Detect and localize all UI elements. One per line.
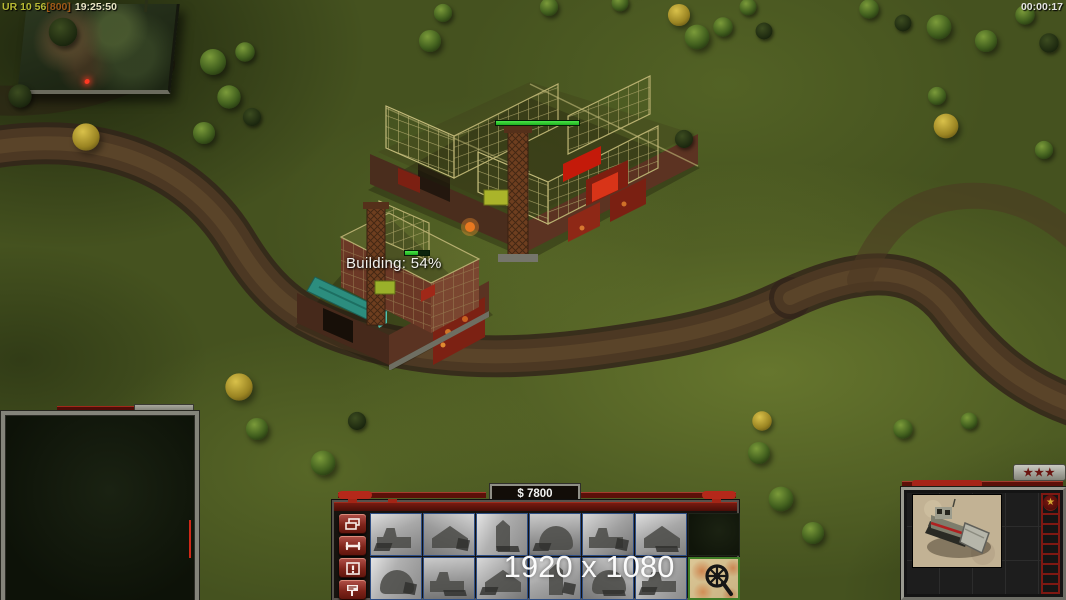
tree — [225, 373, 252, 400]
building-thumbnail-detail — [443, 590, 467, 596]
tree — [934, 114, 959, 139]
build-option-button[interactable] — [370, 557, 422, 600]
minimap[interactable] — [1, 411, 199, 600]
camera-view-line — [189, 520, 191, 558]
rank-stars-button[interactable]: ★★★ — [1013, 464, 1066, 481]
debug-prefix: UR 10 56 — [2, 1, 46, 13]
game-viewport[interactable]: Building: 54% UR 10 56[800]19:25:50 00:0… — [0, 0, 1066, 600]
formation-button[interactable] — [339, 514, 366, 534]
tree — [434, 4, 452, 22]
tree — [246, 418, 268, 440]
tree — [1035, 141, 1053, 159]
building-thumbnail-detail — [403, 582, 417, 595]
tree — [235, 42, 255, 62]
tree — [217, 85, 240, 108]
tree — [200, 49, 226, 75]
building-thumbnail-silhouette — [644, 524, 680, 548]
unit-info-panel[interactable]: ★ — [901, 487, 1066, 600]
tree — [675, 130, 693, 148]
exclamation-icon — [346, 562, 360, 575]
topband-nub — [712, 499, 721, 503]
building-thumbnail-detail — [602, 590, 626, 596]
tree — [713, 17, 733, 37]
star-emblem-icon: ★ — [1043, 495, 1058, 511]
tree — [685, 25, 710, 50]
tree — [8, 84, 31, 107]
building-thumbnail-silhouette — [430, 572, 464, 592]
building-progress-label: Building: 54% — [346, 255, 442, 272]
debug-clock: 19:25:50 — [75, 1, 117, 13]
tree — [668, 4, 690, 26]
construction-dozer-portrait[interactable] — [912, 494, 1002, 568]
alert-button[interactable] — [339, 558, 366, 578]
tree — [1039, 33, 1059, 53]
layers-icon — [345, 518, 360, 530]
tree — [928, 87, 946, 105]
building-light — [84, 79, 90, 84]
side-button-column — [339, 514, 367, 600]
debug-text: UR 10 56[800]19:25:50 — [2, 1, 117, 13]
command-bar-topband — [334, 502, 737, 511]
tree — [927, 15, 952, 40]
tree — [72, 123, 99, 150]
building-thumbnail-detail — [639, 587, 658, 595]
tree — [859, 0, 879, 19]
tree — [49, 18, 78, 47]
command-center-building[interactable] — [17, 4, 179, 94]
building-thumbnail-detail — [374, 543, 393, 551]
dozer-art — [913, 495, 1001, 567]
tree — [769, 487, 794, 512]
tree — [193, 122, 215, 144]
tree — [893, 419, 913, 439]
tree — [311, 451, 336, 476]
decor-stripe-left — [338, 492, 486, 498]
decor-stripe-right — [580, 492, 736, 498]
sell-sign-icon — [345, 584, 360, 597]
build-option-button[interactable] — [370, 513, 422, 556]
sell-button[interactable] — [339, 580, 366, 600]
tree — [748, 442, 770, 464]
tree — [348, 412, 366, 430]
small-construction-site[interactable] — [283, 195, 498, 370]
resolution-overlay: 1920 x 1080 — [464, 549, 714, 585]
tree — [961, 413, 978, 430]
building-thumbnail-detail — [480, 587, 499, 595]
tree — [752, 411, 772, 431]
tree — [975, 30, 997, 52]
small-construction-art — [283, 195, 498, 370]
antenna-mast — [144, 0, 149, 12]
tree — [243, 108, 261, 126]
match-timer: 00:00:17 — [1021, 1, 1063, 13]
tree — [419, 30, 441, 52]
repair-button[interactable] — [339, 536, 366, 556]
wrench-icon — [345, 540, 361, 552]
veterancy-ladder: ★ — [1041, 493, 1060, 594]
tree — [802, 522, 824, 544]
building-health-bar — [495, 120, 580, 126]
tree — [756, 23, 773, 40]
debug-bracket: [800] — [46, 1, 71, 13]
tree — [895, 15, 912, 32]
topband-nub — [348, 499, 357, 503]
topband-nub — [388, 499, 397, 503]
